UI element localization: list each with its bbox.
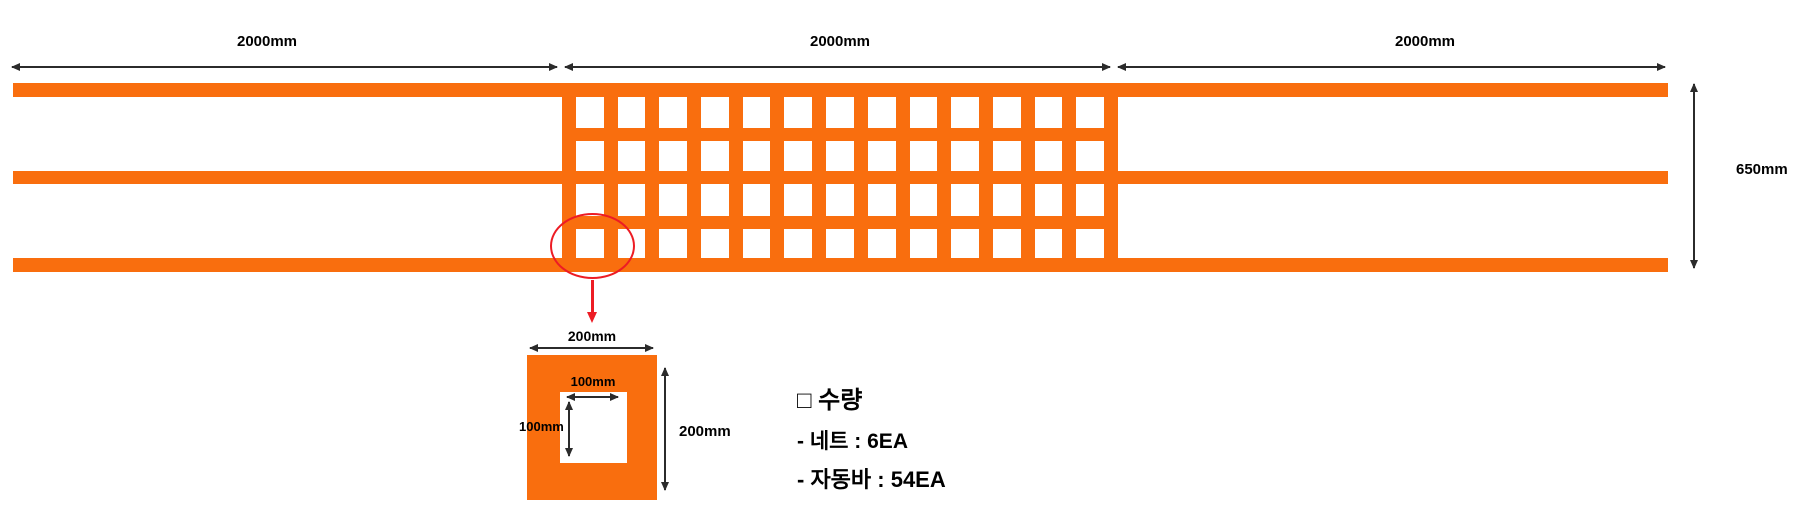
grid-hole: [1035, 141, 1063, 171]
grid-hole: [826, 229, 854, 258]
notes-title: □ 수량: [797, 380, 862, 415]
grid-hole: [993, 141, 1021, 171]
detail-outer-width-label: 200mm: [568, 328, 616, 344]
grid-hole: [868, 229, 896, 258]
grid-hole: [1035, 97, 1063, 128]
detail-inner-width-label: 100mm: [571, 374, 616, 389]
grid-hole: [784, 141, 812, 171]
grid-hole: [951, 184, 979, 216]
grid-hole: [826, 97, 854, 128]
dim-arrow-section-1: [12, 66, 557, 68]
dim-label-section-3: 2000mm: [1395, 33, 1455, 50]
grid-hole: [618, 97, 646, 128]
grid-hole: [659, 229, 687, 258]
grid-hole: [868, 141, 896, 171]
grid-hole: [659, 184, 687, 216]
grid-hole: [659, 97, 687, 128]
detail-inner-height-label: 100mm: [519, 419, 564, 434]
grid-hole: [618, 184, 646, 216]
net-spec-diagram: 2000mm 2000mm 2000mm 650mm 200mm 100mm 1…: [0, 0, 1814, 516]
grid-hole: [1076, 97, 1104, 128]
grid-hole: [868, 184, 896, 216]
grid-hole: [701, 184, 729, 216]
dim-label-height: 650mm: [1736, 161, 1788, 178]
grid-hole: [1076, 141, 1104, 171]
detail-inner-height-arrow: [568, 402, 570, 456]
grid-hole: [743, 141, 771, 171]
dim-arrow-section-2: [565, 66, 1110, 68]
grid-hole: [910, 141, 938, 171]
grid-hole: [701, 141, 729, 171]
dim-label-section-1: 2000mm: [237, 33, 297, 50]
grid-hole: [576, 141, 604, 171]
dim-arrow-height: [1693, 84, 1695, 268]
grid-hole: [576, 184, 604, 216]
grid-hole: [784, 229, 812, 258]
detail-inner-width-arrow: [567, 396, 618, 398]
grid-hole: [576, 97, 604, 128]
callout-arrow-icon: [591, 280, 594, 313]
detail-outer-height-arrow: [664, 368, 666, 490]
grid-hole: [743, 97, 771, 128]
dim-label-section-2: 2000mm: [810, 33, 870, 50]
grid-hole: [951, 229, 979, 258]
grid-hole: [826, 141, 854, 171]
grid-hole: [1076, 184, 1104, 216]
grid-hole: [910, 229, 938, 258]
note-autobar-quantity: - 자동바 : 54EA: [797, 462, 946, 494]
grid-hole: [618, 141, 646, 171]
grid-hole: [784, 184, 812, 216]
grid-hole: [993, 184, 1021, 216]
grid-hole: [868, 97, 896, 128]
dim-arrow-section-3: [1118, 66, 1665, 68]
grid-hole: [951, 141, 979, 171]
grid-hole: [659, 141, 687, 171]
grid-hole: [1076, 229, 1104, 258]
grid-hole: [701, 97, 729, 128]
detail-outer-height-label: 200mm: [679, 423, 731, 440]
grid-hole: [910, 97, 938, 128]
net-grid: [562, 83, 1118, 272]
grid-hole: [993, 229, 1021, 258]
grid-hole: [784, 97, 812, 128]
note-net-quantity: - 네트 : 6EA: [797, 425, 908, 455]
grid-hole: [993, 97, 1021, 128]
grid-hole: [1035, 184, 1063, 216]
callout-circle: [550, 213, 635, 279]
grid-hole: [826, 184, 854, 216]
grid-hole: [910, 184, 938, 216]
grid-hole: [743, 229, 771, 258]
grid-hole: [743, 184, 771, 216]
grid-hole: [701, 229, 729, 258]
detail-outer-width-arrow: [530, 347, 653, 349]
grid-hole: [951, 97, 979, 128]
grid-hole: [1035, 229, 1063, 258]
